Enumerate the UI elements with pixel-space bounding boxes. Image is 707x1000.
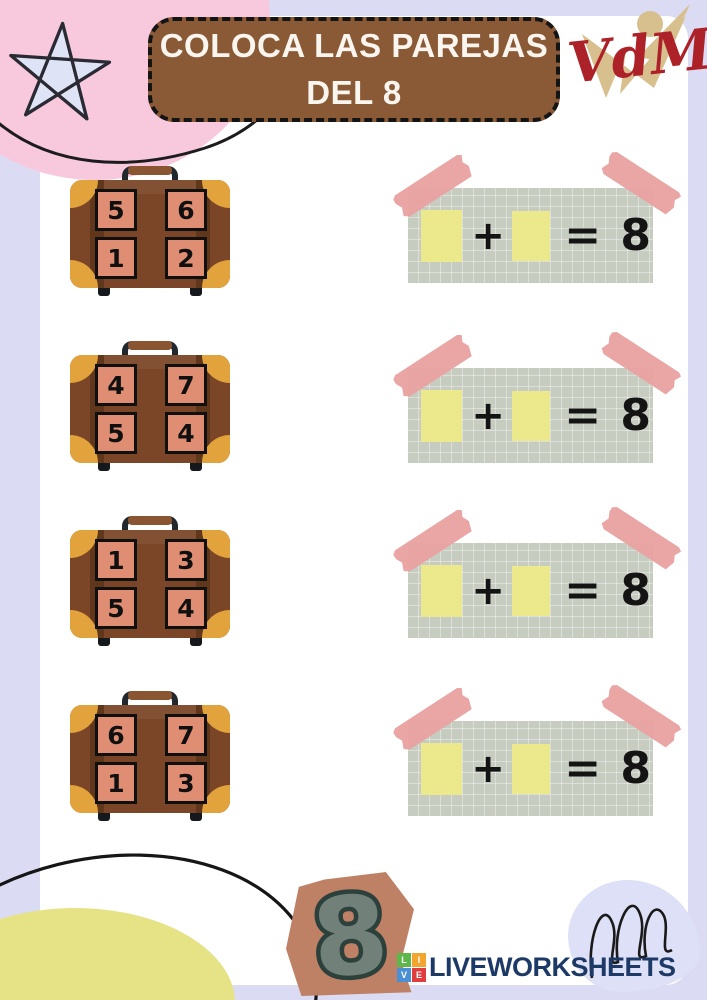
number-tile[interactable]: 3 [165, 762, 207, 804]
suitcase-foot [190, 288, 202, 296]
equals-eight: = 8 [564, 565, 653, 616]
number-tile[interactable]: 5 [95, 189, 137, 231]
answer-slot-a[interactable] [421, 743, 462, 795]
tile-grid: 1 3 5 4 [95, 539, 207, 629]
answer-slot-b[interactable] [512, 211, 550, 261]
suitcase-foot [190, 463, 202, 471]
number-tile[interactable]: 3 [165, 539, 207, 581]
liveworksheets-icon: L I V E [397, 953, 426, 982]
liveworksheets-wordmark: LIVEWORKSHEETS [429, 952, 676, 983]
equation-board-3: + = 8 [408, 543, 653, 638]
number-tile[interactable]: 4 [165, 412, 207, 454]
tile-grid: 6 7 1 3 [95, 714, 207, 804]
suitcase-4: 6 7 1 3 [70, 691, 230, 823]
number-tile[interactable]: 7 [165, 714, 207, 756]
equation-row: + = 8 [408, 368, 653, 463]
plus-sign: + [471, 213, 505, 259]
publisher-logo-text: VdM [568, 16, 707, 97]
answer-slot-a[interactable] [421, 210, 462, 262]
number-tile[interactable]: 7 [165, 364, 207, 406]
plus-sign: + [471, 393, 505, 439]
suitcase-2: 4 7 5 4 [70, 341, 230, 473]
equation-row: + = 8 [408, 721, 653, 816]
equals-eight: = 8 [564, 210, 653, 261]
equation-board-1: + = 8 [408, 188, 653, 283]
suitcase-1: 5 6 1 2 [70, 166, 230, 298]
suitcase-3: 1 3 5 4 [70, 516, 230, 648]
worksheet-title: COLOCA LAS PAREJAS DEL 8 [148, 17, 560, 122]
number-tile[interactable]: 4 [165, 587, 207, 629]
answer-slot-b[interactable] [512, 391, 550, 441]
number-tile[interactable]: 6 [95, 714, 137, 756]
number-tile[interactable]: 1 [95, 237, 137, 279]
number-eight-stamp: 8 [286, 872, 414, 996]
suitcase-grip [128, 166, 172, 175]
number-tile[interactable]: 5 [95, 587, 137, 629]
big-eight-numeral: 8 [307, 872, 393, 996]
answer-slot-a[interactable] [421, 565, 462, 617]
suitcase-foot [98, 813, 110, 821]
suitcase-grip [128, 341, 172, 350]
icon-letter-l: L [397, 953, 411, 967]
number-tile[interactable]: 1 [95, 762, 137, 804]
plus-sign: + [471, 746, 505, 792]
suitcase-foot [98, 638, 110, 646]
title-line-2: DEL 8 [306, 70, 401, 117]
equation-row: + = 8 [408, 188, 653, 283]
answer-slot-b[interactable] [512, 566, 550, 616]
tile-grid: 4 7 5 4 [95, 364, 207, 454]
suitcase-foot [190, 638, 202, 646]
icon-letter-i: I [412, 953, 426, 967]
number-tile[interactable]: 4 [95, 364, 137, 406]
icon-letter-e: E [412, 968, 426, 982]
equals-eight: = 8 [564, 390, 653, 441]
suitcase-grip [128, 691, 172, 700]
equals-eight: = 8 [564, 743, 653, 794]
tile-grid: 5 6 1 2 [95, 189, 207, 279]
answer-slot-b[interactable] [512, 744, 550, 794]
icon-letter-v: V [397, 968, 411, 982]
suitcase-grip [128, 516, 172, 525]
worksheet-page: VdM COLOCA LAS PAREJAS DEL 8 5 6 1 2 [0, 0, 707, 1000]
star-doodle-icon [4, 11, 119, 133]
publisher-logo: VdM [568, 2, 707, 110]
number-tile[interactable]: 6 [165, 189, 207, 231]
number-tile[interactable]: 2 [165, 237, 207, 279]
liveworksheets-logo[interactable]: L I V E LIVEWORKSHEETS [397, 952, 676, 983]
equation-board-4: + = 8 [408, 721, 653, 816]
suitcase-foot [98, 463, 110, 471]
number-tile[interactable]: 1 [95, 539, 137, 581]
suitcase-foot [190, 813, 202, 821]
title-line-1: COLOCA LAS PAREJAS [160, 23, 549, 70]
answer-slot-a[interactable] [421, 390, 462, 442]
suitcase-foot [98, 288, 110, 296]
equation-row: + = 8 [408, 543, 653, 638]
plus-sign: + [471, 568, 505, 614]
equation-board-2: + = 8 [408, 368, 653, 463]
number-tile[interactable]: 5 [95, 412, 137, 454]
